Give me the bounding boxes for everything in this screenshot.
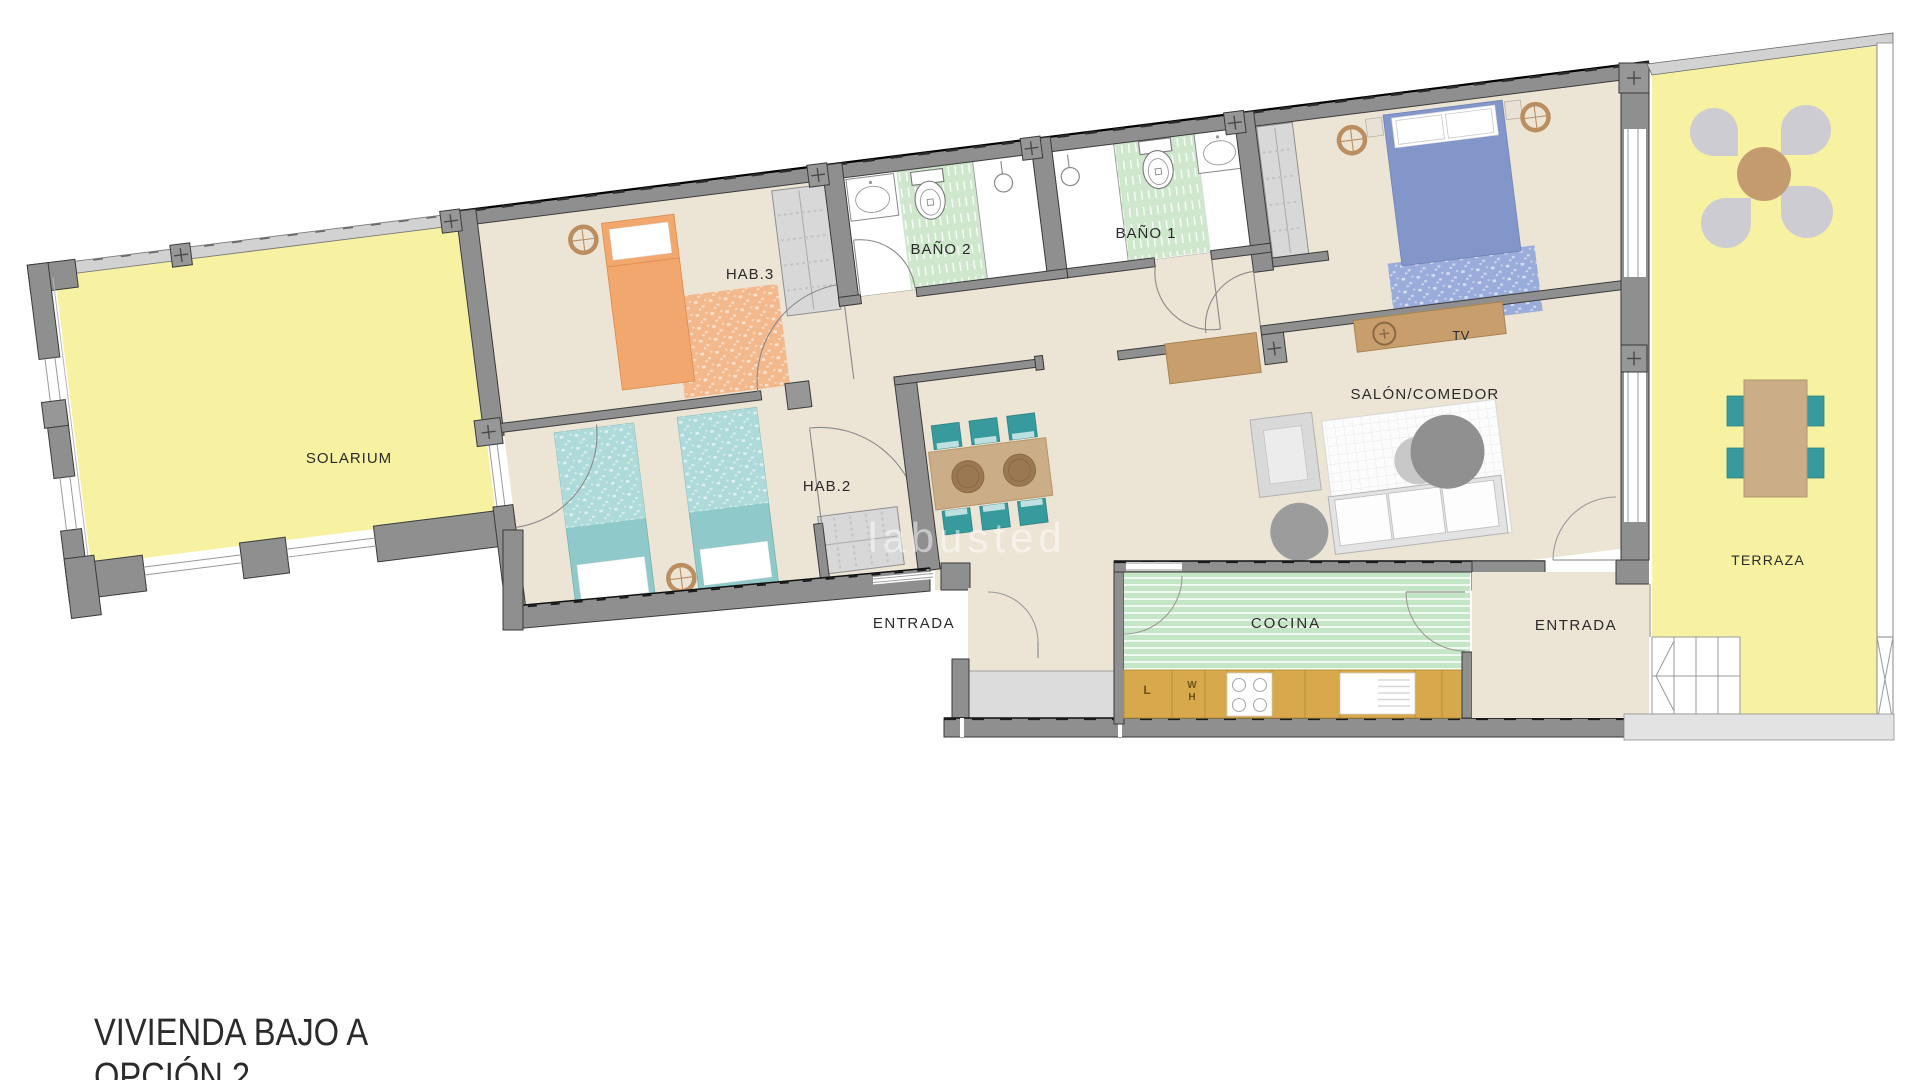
- svg-text:labusted: labusted: [868, 514, 1067, 561]
- svg-text:H: H: [1188, 692, 1195, 703]
- svg-text:SOLARIUM: SOLARIUM: [306, 450, 392, 467]
- svg-text:TERRAZA: TERRAZA: [1731, 552, 1805, 568]
- svg-text:HAB.3: HAB.3: [726, 266, 774, 283]
- svg-text:W: W: [1187, 680, 1197, 691]
- svg-text:BAÑO 1: BAÑO 1: [1115, 225, 1176, 242]
- svg-text:VIVIENDA BAJO A: VIVIENDA BAJO A: [94, 1011, 368, 1054]
- svg-text:COCINA: COCINA: [1251, 615, 1321, 632]
- svg-text:ENTRADA: ENTRADA: [873, 615, 955, 632]
- svg-text:BAÑO 2: BAÑO 2: [910, 241, 971, 258]
- svg-text:OPCIÓN 2: OPCIÓN 2: [94, 1055, 250, 1080]
- svg-text:SALÓN/COMEDOR: SALÓN/COMEDOR: [1351, 386, 1500, 403]
- svg-text:TV: TV: [1452, 328, 1470, 343]
- svg-text:ENTRADA: ENTRADA: [1535, 617, 1617, 634]
- svg-text:L: L: [1143, 683, 1150, 697]
- svg-text:HAB.2: HAB.2: [803, 478, 851, 495]
